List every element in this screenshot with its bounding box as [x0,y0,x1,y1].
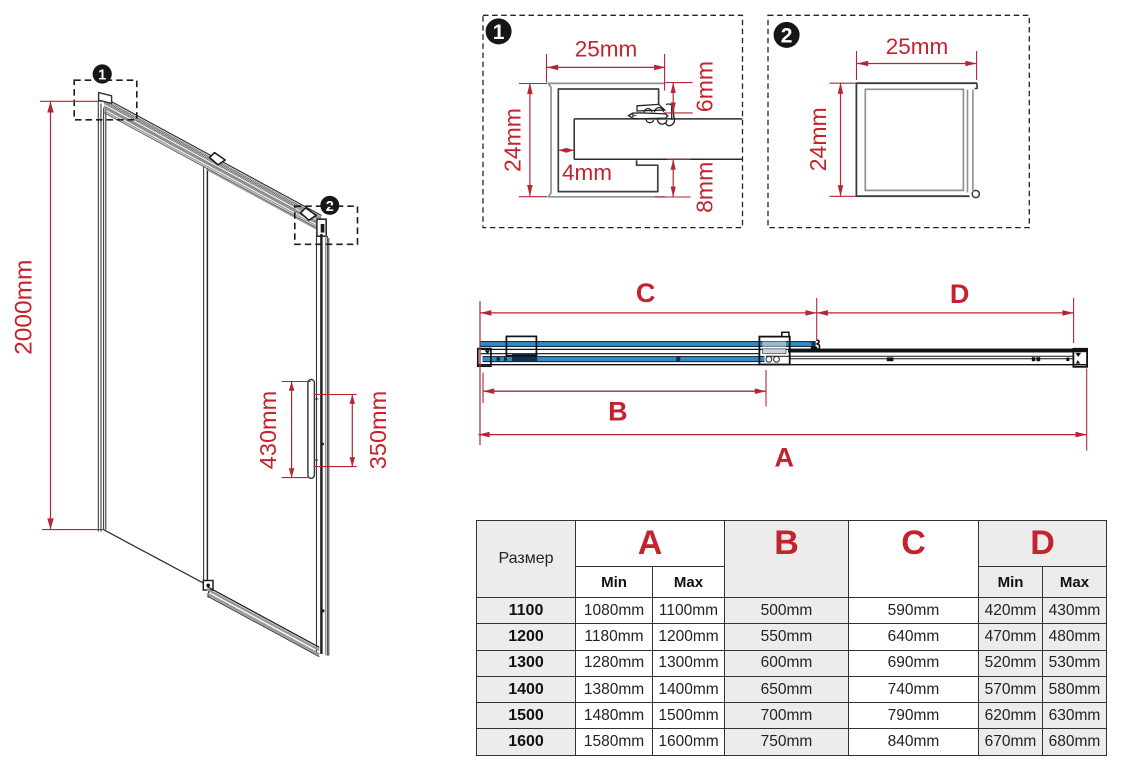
svg-text:C: C [636,278,656,308]
svg-text:350mm: 350mm [365,391,391,469]
svg-text:B: B [608,396,628,426]
svg-text:4mm: 4mm [562,160,612,185]
svg-text:2: 2 [781,25,793,48]
svg-text:25mm: 25mm [886,34,949,59]
svg-text:8mm: 8mm [692,162,718,213]
svg-text:24mm: 24mm [500,108,526,172]
svg-text:24mm: 24mm [805,107,831,171]
svg-text:D: D [950,279,970,309]
svg-text:6mm: 6mm [692,61,718,112]
svg-text:2000mm: 2000mm [11,260,38,355]
svg-text:430mm: 430mm [255,391,281,469]
svg-text:25mm: 25mm [575,37,638,62]
svg-text:1: 1 [98,68,106,84]
svg-text:A: A [775,442,795,472]
svg-text:1: 1 [493,21,505,44]
